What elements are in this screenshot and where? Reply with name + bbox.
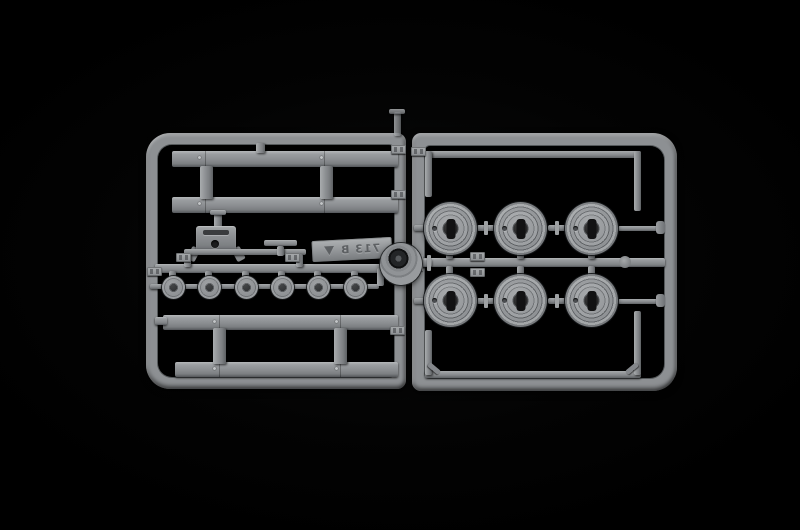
rail-part-2 <box>172 197 398 213</box>
part-number-tag <box>147 267 162 276</box>
road-wheel-part <box>565 202 618 255</box>
rivet <box>198 156 201 159</box>
rivet <box>320 202 323 205</box>
marking-plaque-inner: 713 B <box>324 243 381 257</box>
part-number-tag <box>470 268 485 277</box>
rail-seam <box>324 197 325 213</box>
gearbox-slot <box>203 230 229 235</box>
inner-brace-drop <box>634 151 641 211</box>
wheel-stub <box>618 226 658 231</box>
hub-cap-part <box>162 276 185 299</box>
part-number-tag <box>470 252 485 261</box>
runner-stub <box>155 317 167 325</box>
wheel-axle-hole <box>446 291 455 311</box>
rail-seam <box>324 151 325 167</box>
wheel-dimple <box>432 298 437 303</box>
rail-seam <box>205 151 206 167</box>
wheel-dimple <box>573 298 578 303</box>
hub-link <box>292 284 308 289</box>
road-wheel-part <box>424 202 477 255</box>
part-number-tag <box>176 253 191 262</box>
road-wheel-part <box>424 274 477 327</box>
wheel-stub <box>618 299 658 304</box>
hub-link <box>219 284 236 289</box>
sprue-marking-text: 713 B <box>340 243 381 256</box>
hub-link <box>256 284 272 289</box>
sprue-assembly: 713 B <box>0 0 800 530</box>
rivet <box>320 156 323 159</box>
sprue-feed-stub <box>394 112 401 136</box>
rivet <box>198 202 201 205</box>
stub-flange <box>427 255 431 271</box>
part-number-tag <box>391 145 406 154</box>
inner-brace-drop <box>425 151 432 197</box>
wheel-dimple <box>432 226 437 231</box>
hub-cap-part <box>344 276 367 299</box>
wheel-dimple <box>502 226 507 231</box>
wheel-axle-hole <box>516 219 525 239</box>
brand-triangle-icon <box>324 246 334 256</box>
hub-cap-part <box>198 276 221 299</box>
rail-seam <box>219 362 220 377</box>
runner-pad <box>619 256 631 268</box>
hub-link <box>328 284 345 289</box>
sprue-gate <box>380 243 422 285</box>
frame-nub <box>656 294 665 307</box>
rail-part-3 <box>163 315 398 330</box>
gearbox-stub-cap <box>210 210 226 215</box>
road-wheel-part <box>494 202 547 255</box>
wheel-axle-hole <box>587 291 596 311</box>
rail-crossbar <box>320 166 333 199</box>
stub-flange <box>484 294 488 308</box>
t-bracket-stem <box>277 246 284 256</box>
frame-nub <box>656 221 665 234</box>
hub-link <box>183 284 199 289</box>
part-number-tag <box>411 147 426 156</box>
rivet <box>213 367 216 370</box>
rivet <box>335 320 338 323</box>
road-wheel-part <box>494 274 547 327</box>
wheel-axle-hole <box>516 291 525 311</box>
rail-part-4 <box>175 362 398 377</box>
rivet <box>213 320 216 323</box>
stub-flange <box>555 221 559 235</box>
gearbox-hole <box>211 240 219 248</box>
wheel-axle-hole <box>587 219 596 239</box>
part-number-tag <box>391 190 406 199</box>
rivet <box>335 367 338 370</box>
inner-brace-top <box>425 151 641 158</box>
road-wheel-part <box>565 274 618 327</box>
wheel-dimple <box>573 226 578 231</box>
rail-crossbar <box>334 328 347 364</box>
hub-cap-part <box>235 276 258 299</box>
part-number-tag <box>390 326 405 335</box>
inner-brace-bottom <box>425 371 641 378</box>
photo-stage: 713 B <box>0 0 800 530</box>
stub-flange <box>484 221 488 235</box>
part-number-tag <box>285 253 300 262</box>
rail-seam <box>205 197 206 213</box>
runner-stub <box>256 143 265 153</box>
rail-crossbar <box>213 328 226 364</box>
hub-cap-part <box>307 276 330 299</box>
sprue-feed-cap <box>389 109 405 114</box>
rail-part-1 <box>172 151 398 167</box>
wheel-dimple <box>502 298 507 303</box>
rail-crossbar <box>200 166 213 199</box>
stub-flange <box>555 294 559 308</box>
hub-cap-part <box>271 276 294 299</box>
wheel-axle-hole <box>446 219 455 239</box>
rail-seam <box>340 362 341 377</box>
